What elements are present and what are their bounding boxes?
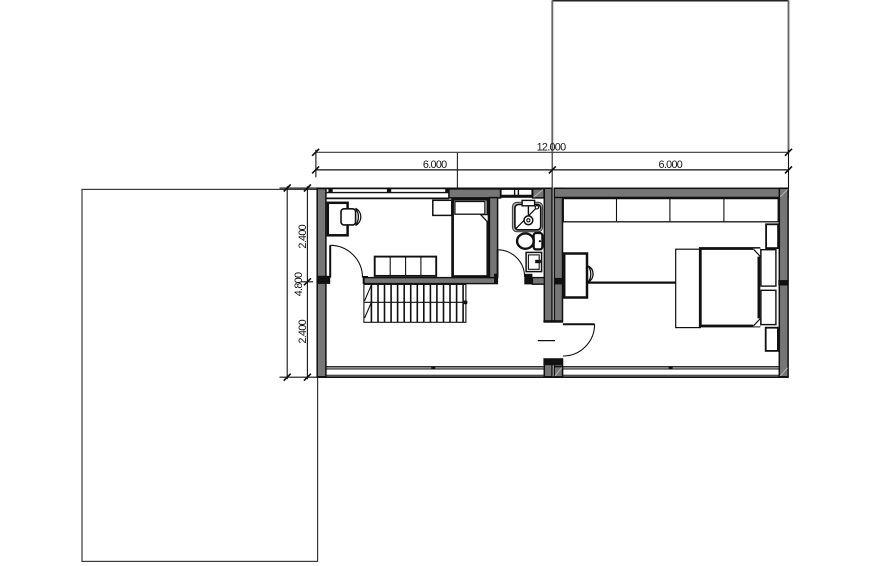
svg-text:6.000: 6.000 <box>659 159 683 171</box>
svg-text:12.000: 12.000 <box>537 142 567 154</box>
svg-text:6.000: 6.000 <box>423 159 447 171</box>
svg-text:2.400: 2.400 <box>297 319 309 343</box>
svg-text:2.400: 2.400 <box>297 224 309 248</box>
svg-text:4.800: 4.800 <box>293 272 305 296</box>
